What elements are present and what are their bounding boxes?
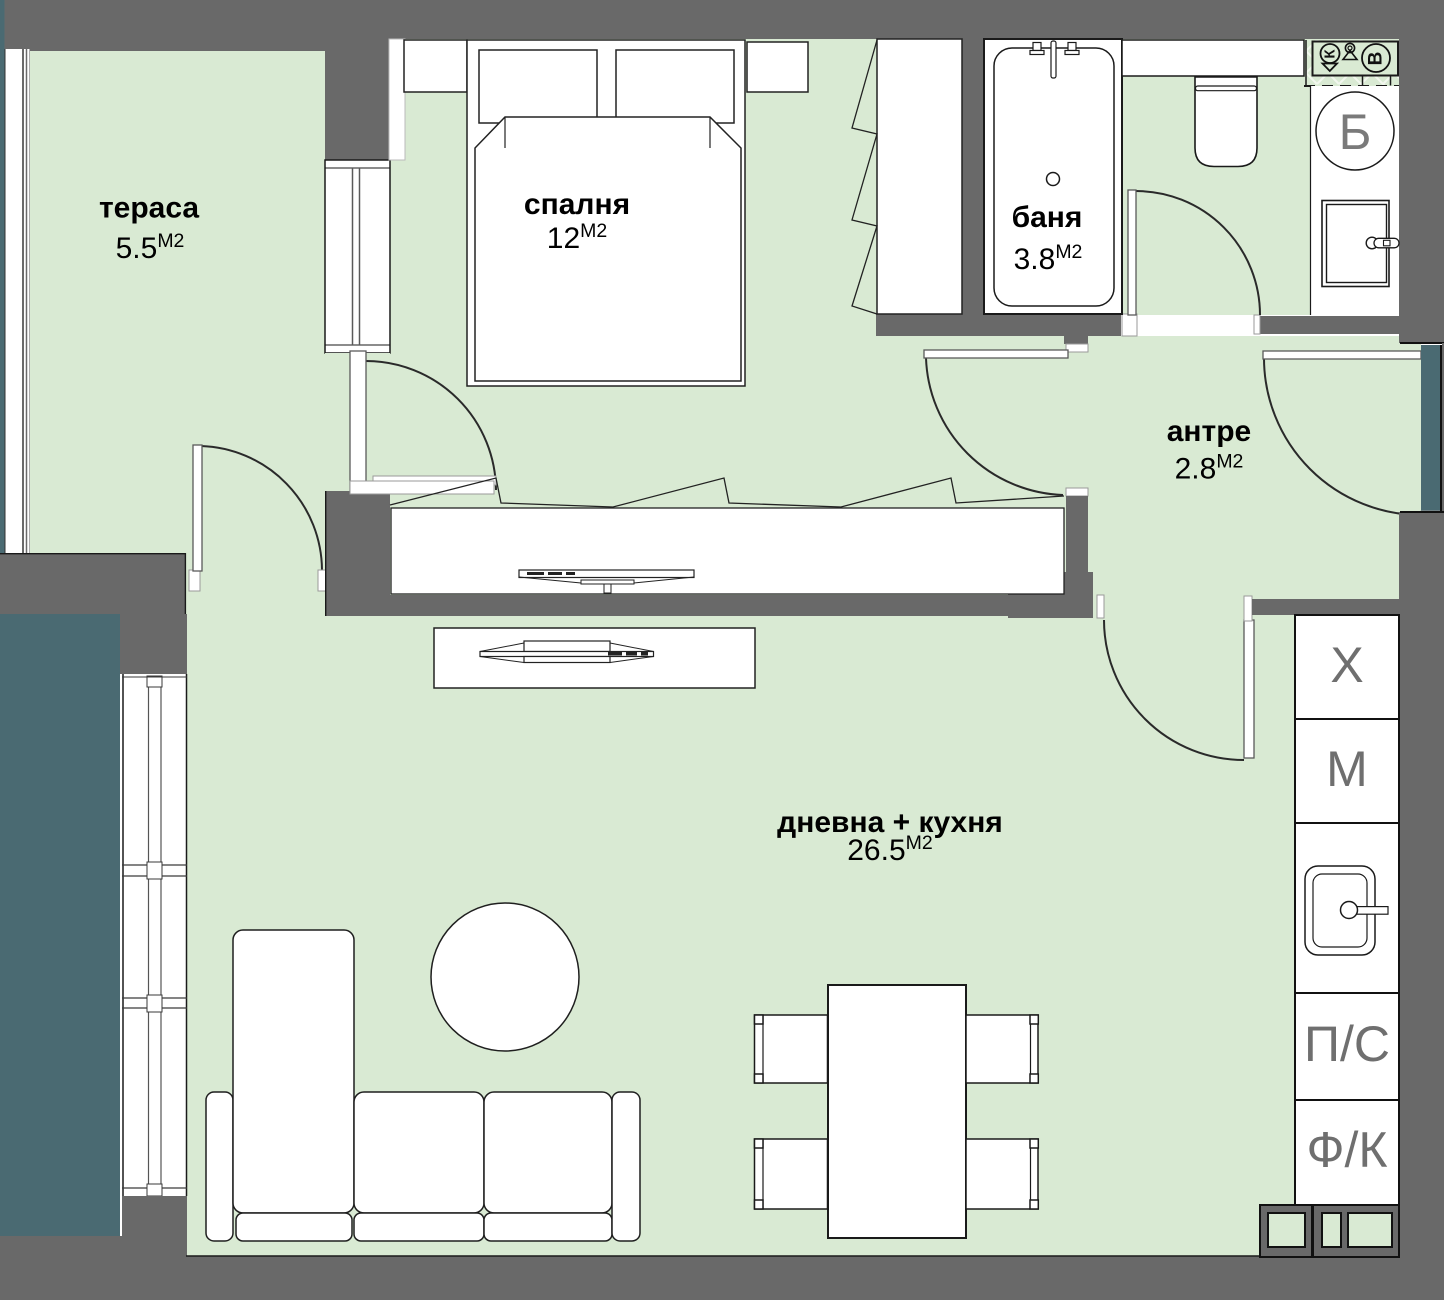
svg-text:Б: Б xyxy=(1339,104,1372,160)
svg-text:антре: антре xyxy=(1167,415,1252,448)
svg-text:П/С: П/С xyxy=(1304,1016,1390,1072)
svg-text:спалня: спалня xyxy=(524,188,630,221)
svg-text:М: М xyxy=(1326,741,1368,797)
svg-text:В: В xyxy=(1366,52,1387,66)
svg-text:Х: Х xyxy=(1330,637,1363,693)
svg-text:тераса: тераса xyxy=(99,192,199,225)
svg-text:К: К xyxy=(1322,49,1339,59)
svg-text:баня: баня xyxy=(1012,201,1083,234)
svg-text:Ф/К: Ф/К xyxy=(1306,1122,1387,1178)
